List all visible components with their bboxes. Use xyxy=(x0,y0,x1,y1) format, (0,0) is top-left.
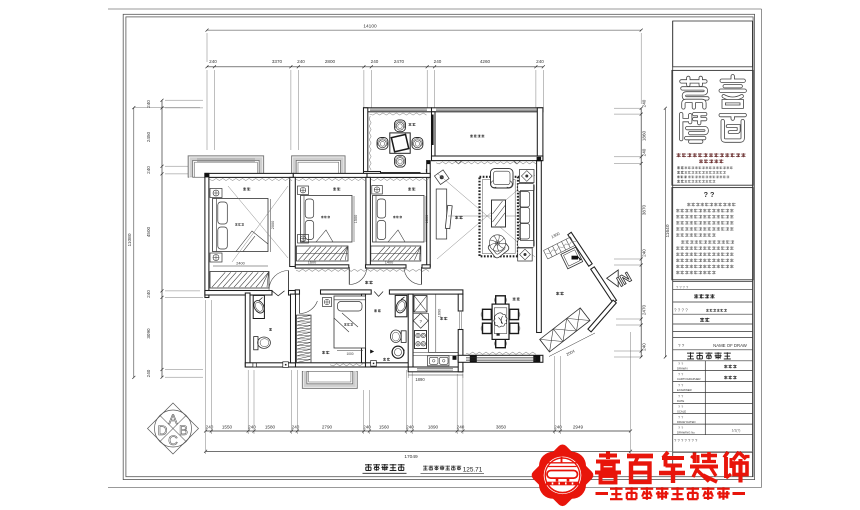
svg-text:? ? ? ?: ? ? ? ? xyxy=(674,308,688,313)
svg-text:C: C xyxy=(168,433,178,448)
svg-text:240: 240 xyxy=(292,425,300,430)
svg-text:14100: 14100 xyxy=(363,23,377,29)
svg-text:240: 240 xyxy=(297,59,305,64)
svg-text:240: 240 xyxy=(434,59,442,64)
svg-text:1580: 1580 xyxy=(265,425,276,430)
svg-text:2949: 2949 xyxy=(573,425,584,430)
svg-text:2470: 2470 xyxy=(394,59,405,64)
svg-text:DRAWING No: DRAWING No xyxy=(677,430,695,434)
svg-text:? ? ? ? ? ? ?: ? ? ? ? ? ? ? xyxy=(674,438,698,443)
svg-text:11080: 11080 xyxy=(127,233,133,246)
svg-text:1560: 1560 xyxy=(379,425,390,430)
svg-text:240: 240 xyxy=(642,99,647,107)
svg-text:3870: 3870 xyxy=(642,204,647,215)
svg-text:2450: 2450 xyxy=(146,131,151,142)
svg-text:1890: 1890 xyxy=(428,425,439,430)
svg-text:240: 240 xyxy=(146,166,151,174)
svg-text:DRAWN: DRAWN xyxy=(677,366,687,370)
svg-text:1/1(?): 1/1(?) xyxy=(732,429,741,433)
svg-text:240: 240 xyxy=(146,290,151,298)
svg-text:240: 240 xyxy=(406,425,414,430)
svg-text:240: 240 xyxy=(536,59,544,64)
svg-text:? ?: ? ? xyxy=(704,190,715,199)
svg-text:DATE: DATE xyxy=(677,399,684,403)
svg-text:17049: 17049 xyxy=(404,454,418,460)
svg-text:D: D xyxy=(158,423,168,438)
svg-text:1860: 1860 xyxy=(642,130,647,141)
svg-text:1550: 1550 xyxy=(222,425,233,430)
svg-text:NAME OF DRAW: NAME OF DRAW xyxy=(713,343,748,348)
svg-text:240: 240 xyxy=(146,100,151,108)
svg-text:CARTOGRAPHER: CARTOGRAPHER xyxy=(677,377,701,381)
svg-text:125.71: 125.71 xyxy=(463,467,483,474)
svg-text:240: 240 xyxy=(363,425,371,430)
svg-text:B: B xyxy=(179,423,188,438)
svg-text:EXAMINER: EXAMINER xyxy=(677,388,692,392)
svg-text:1000: 1000 xyxy=(346,352,353,356)
svg-text:2400: 2400 xyxy=(236,261,244,265)
svg-text:240: 240 xyxy=(642,148,647,156)
svg-text:240: 240 xyxy=(206,425,214,430)
svg-text:2790: 2790 xyxy=(322,425,333,430)
svg-text:4260: 4260 xyxy=(480,59,491,64)
svg-text:240: 240 xyxy=(642,343,647,351)
svg-text:1890: 1890 xyxy=(415,377,425,382)
svg-text:DRAW DATED: DRAW DATED xyxy=(677,420,696,424)
svg-text:2000: 2000 xyxy=(271,221,275,229)
svg-text:1690: 1690 xyxy=(437,309,441,317)
svg-text:? ?: ? ? xyxy=(678,343,685,348)
svg-text:2470: 2470 xyxy=(642,304,647,315)
svg-text:240: 240 xyxy=(209,59,217,64)
svg-text:240: 240 xyxy=(371,59,379,64)
svg-text:1400: 1400 xyxy=(385,260,393,264)
svg-text:SCALE: SCALE xyxy=(677,409,686,413)
svg-text:3090: 3090 xyxy=(146,328,151,339)
svg-text:A: A xyxy=(168,412,177,427)
svg-text:240: 240 xyxy=(642,249,647,257)
svg-text:2800: 2800 xyxy=(325,59,336,64)
svg-text:3850: 3850 xyxy=(496,425,507,430)
svg-text:3370: 3370 xyxy=(272,59,283,64)
svg-text:240: 240 xyxy=(146,369,151,377)
svg-text:240: 240 xyxy=(554,425,562,430)
svg-text:240: 240 xyxy=(248,425,256,430)
svg-text:240: 240 xyxy=(457,425,465,430)
svg-text:1500: 1500 xyxy=(354,215,358,223)
svg-text:11640: 11640 xyxy=(665,224,671,237)
svg-text:1600: 1600 xyxy=(308,260,316,264)
svg-text:4500: 4500 xyxy=(146,226,151,237)
svg-text:? ? ? ?: ? ? ? ? xyxy=(676,284,689,289)
svg-text:1500: 1500 xyxy=(425,215,429,223)
